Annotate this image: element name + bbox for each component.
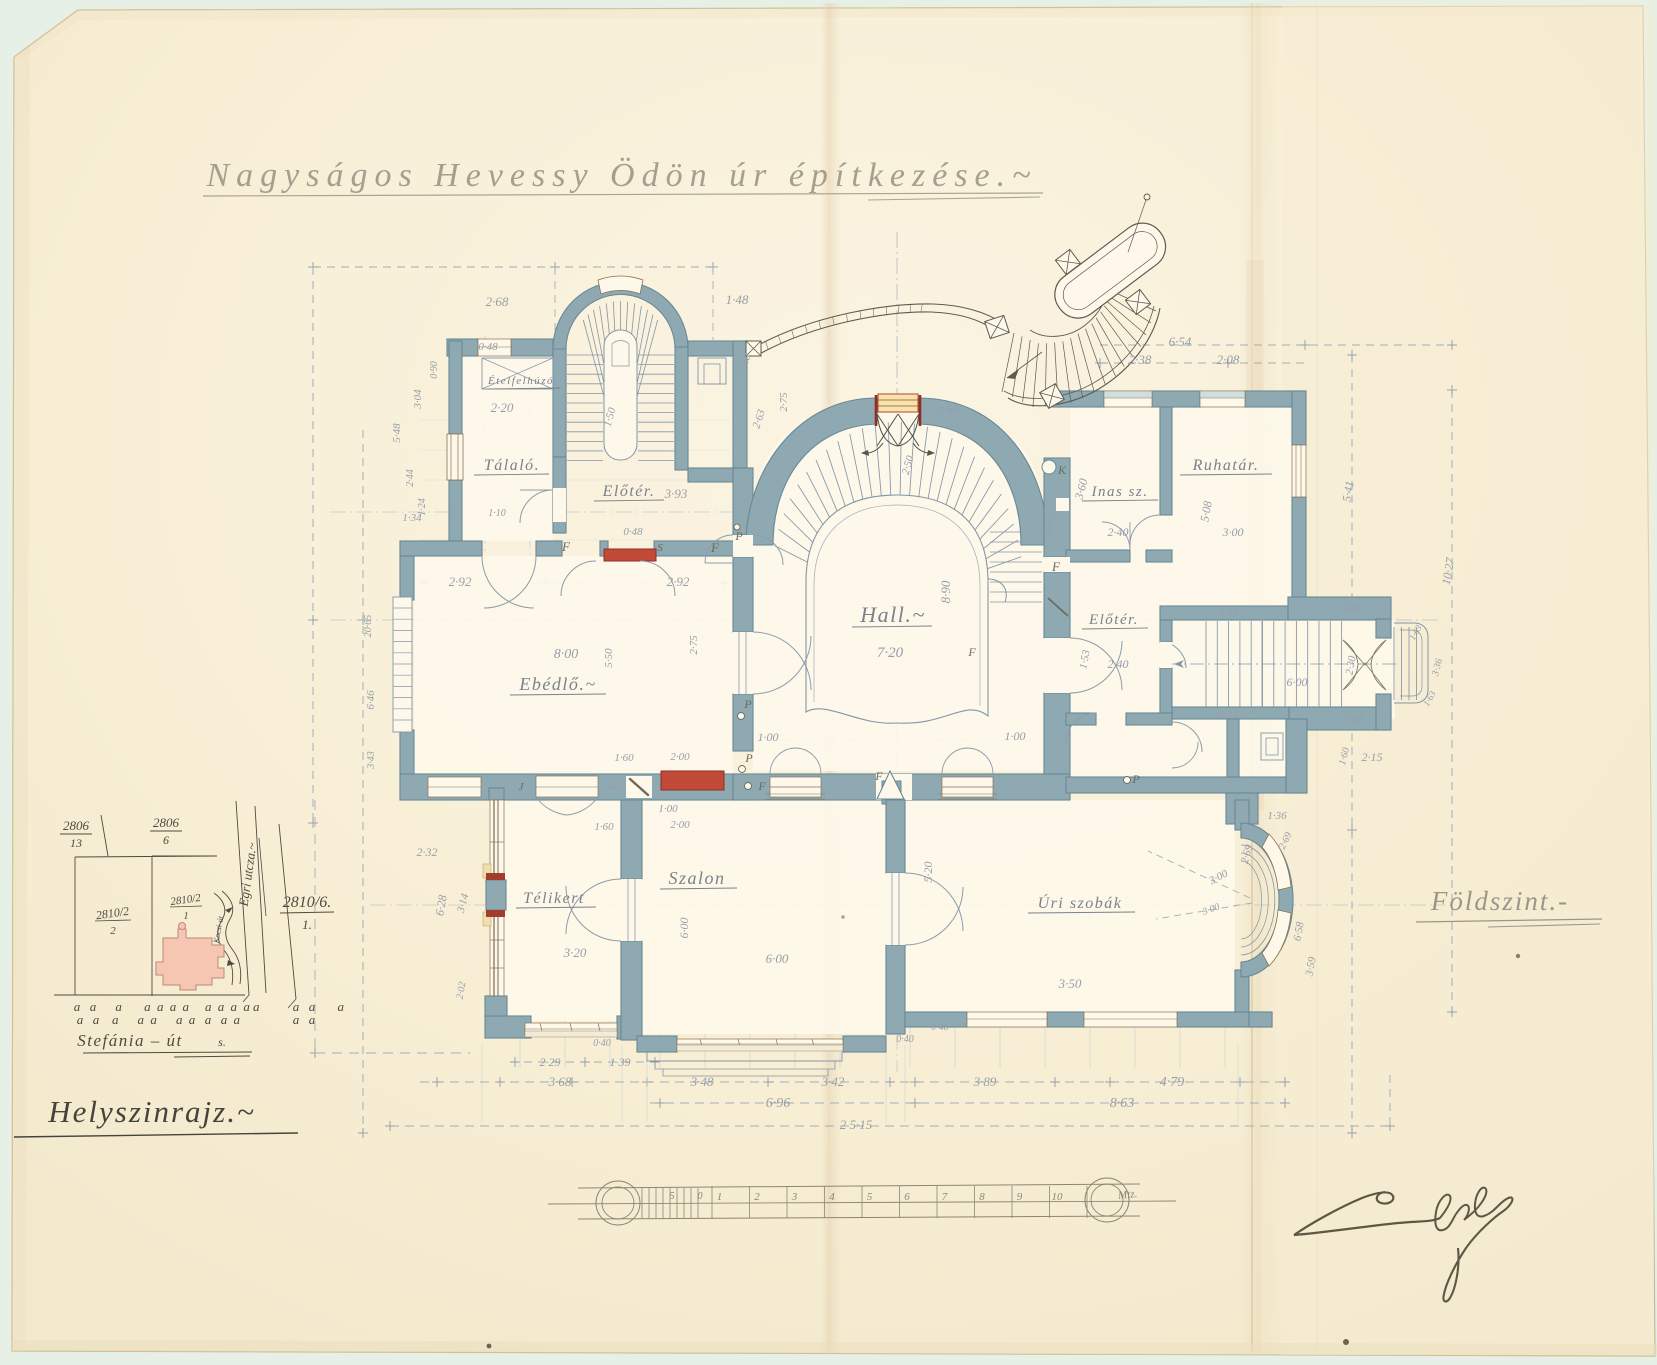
- svg-text:7·20: 7·20: [877, 645, 904, 661]
- svg-text:2: 2: [110, 925, 116, 937]
- svg-text:3: 3: [791, 1191, 798, 1203]
- svg-text:Előtér.: Előtér.: [602, 483, 656, 500]
- svg-text:1·00: 1·00: [1005, 729, 1026, 743]
- svg-text:9: 9: [1017, 1191, 1023, 1203]
- svg-text:a: a: [77, 1012, 84, 1027]
- svg-text:1·00: 1·00: [658, 803, 678, 815]
- svg-text:2810/6.: 2810/6.: [283, 894, 331, 911]
- svg-text:3·48: 3·48: [690, 1074, 714, 1089]
- svg-text:8: 8: [979, 1191, 985, 1203]
- svg-text:2806: 2806: [63, 818, 90, 833]
- svg-text:0·48: 0·48: [1342, 603, 1362, 615]
- svg-text:a: a: [112, 1012, 119, 1027]
- svg-text:5·50: 5·50: [603, 648, 615, 668]
- svg-text:3·20: 3·20: [563, 945, 587, 960]
- svg-text:0·48: 0·48: [931, 1022, 949, 1033]
- svg-text:K: K: [1057, 463, 1067, 477]
- svg-text:P: P: [744, 751, 753, 765]
- svg-text:Földszint.-: Földszint.-: [1430, 886, 1569, 916]
- svg-text:Úri szobák: Úri szobák: [1038, 893, 1123, 912]
- svg-text:2·00: 2·00: [670, 751, 690, 763]
- svg-text:7: 7: [942, 1191, 948, 1203]
- svg-text:2 5·15: 2 5·15: [840, 1117, 873, 1132]
- svg-text:Szalon: Szalon: [668, 868, 725, 888]
- svg-text:Előtér.: Előtér.: [1088, 612, 1139, 628]
- svg-text:1·24: 1·24: [417, 498, 428, 516]
- svg-text:Ruhatár.: Ruhatár.: [1192, 457, 1260, 474]
- svg-text:2·08: 2·08: [1217, 352, 1240, 367]
- svg-text:P: P: [743, 697, 752, 711]
- svg-text:F: F: [757, 779, 766, 793]
- svg-text:F: F: [967, 645, 976, 659]
- svg-text:5: 5: [670, 1191, 675, 1202]
- svg-text:a: a: [205, 1012, 212, 1027]
- svg-text:S: S: [657, 542, 663, 554]
- svg-text:3·00: 3·00: [1222, 525, 1244, 539]
- svg-text:2·44: 2·44: [405, 469, 416, 487]
- svg-text:2·75: 2·75: [688, 635, 700, 655]
- svg-text:1·36: 1·36: [1267, 810, 1287, 822]
- svg-text:2·92: 2·92: [449, 574, 472, 589]
- svg-text:3·42: 3·42: [821, 1074, 845, 1089]
- svg-text:1·39: 1·39: [610, 1055, 631, 1069]
- svg-text:1·60: 1·60: [594, 821, 614, 833]
- svg-text:a: a: [150, 1012, 157, 1027]
- svg-text:Ebédlő.~: Ebédlő.~: [518, 674, 596, 694]
- svg-text:2·29: 2·29: [540, 1055, 561, 1069]
- svg-text:3·93: 3·93: [664, 486, 688, 501]
- svg-text:a: a: [189, 1012, 196, 1027]
- svg-text:1·10: 1·10: [488, 508, 506, 519]
- svg-text:2·38: 2·38: [1129, 352, 1152, 367]
- svg-text:6·00: 6·00: [677, 918, 691, 939]
- svg-text:a: a: [176, 1012, 183, 1027]
- svg-text:2: 2: [754, 1191, 760, 1203]
- svg-text:F: F: [874, 769, 883, 783]
- svg-text:6: 6: [163, 833, 169, 847]
- svg-text:a: a: [221, 1012, 228, 1027]
- svg-text:2·68: 2·68: [486, 294, 509, 309]
- svg-text:1.: 1.: [302, 917, 312, 932]
- svg-text:3·04: 3·04: [412, 389, 424, 410]
- svg-text:a: a: [93, 1012, 100, 1027]
- svg-text:s.: s.: [218, 1035, 226, 1049]
- svg-text:2·40: 2·40: [1108, 657, 1129, 671]
- svg-text:0·33: 0·33: [1218, 607, 1238, 619]
- svg-text:1: 1: [184, 911, 189, 922]
- svg-text:Inas sz.: Inas sz.: [1090, 484, 1148, 500]
- svg-text:6·46: 6·46: [365, 690, 377, 710]
- svg-text:1: 1: [717, 1191, 723, 1203]
- svg-text:F: F: [1051, 559, 1061, 574]
- svg-text:20·65: 20·65: [363, 615, 374, 638]
- svg-text:6·54: 6·54: [1169, 334, 1192, 349]
- svg-text:Mtz.: Mtz.: [1116, 1188, 1137, 1202]
- svg-text:3·50: 3·50: [1058, 976, 1082, 991]
- svg-text:3·43: 3·43: [366, 751, 377, 770]
- svg-text:Tálaló.: Tálaló.: [484, 457, 540, 474]
- svg-text:a: a: [253, 999, 260, 1014]
- svg-text:5·48: 5·48: [391, 423, 403, 443]
- svg-text:a: a: [338, 999, 345, 1014]
- svg-text:2·75: 2·75: [778, 392, 790, 412]
- svg-text:0·90: 0·90: [429, 361, 440, 379]
- svg-text:F: F: [561, 539, 571, 554]
- svg-text:48: 48: [607, 782, 617, 793]
- svg-text:8·00: 8·00: [554, 647, 579, 662]
- svg-text:8·63: 8·63: [1110, 1096, 1135, 1111]
- svg-text:4·79: 4·79: [1160, 1075, 1185, 1090]
- svg-text:4: 4: [829, 1191, 835, 1203]
- svg-text:6: 6: [904, 1191, 910, 1203]
- svg-text:10: 10: [1052, 1191, 1064, 1203]
- svg-text:Télikert: Télikert: [523, 890, 585, 907]
- svg-text:0·48: 0·48: [623, 526, 643, 538]
- svg-text:6·00: 6·00: [1287, 675, 1308, 689]
- svg-text:2·15: 2·15: [1362, 750, 1383, 764]
- svg-text:2·00: 2·00: [670, 819, 690, 831]
- svg-text:3·68: 3·68: [548, 1074, 572, 1089]
- svg-text:a: a: [243, 999, 250, 1014]
- svg-text:1·00: 1·00: [758, 730, 779, 744]
- svg-text:2·32: 2·32: [417, 845, 438, 859]
- svg-text:6·96: 6·96: [766, 1096, 791, 1111]
- svg-text:1·48: 1·48: [726, 292, 749, 307]
- svg-text:Helyszinrajz.~: Helyszinrajz.~: [47, 1094, 256, 1129]
- svg-text:Hall.~: Hall.~: [859, 602, 926, 627]
- svg-text:P: P: [1131, 772, 1140, 786]
- svg-text:3·89: 3·89: [973, 1074, 997, 1089]
- svg-text:Stefánia – út: Stefánia – út: [77, 1031, 182, 1050]
- svg-text:5·20: 5·20: [921, 862, 935, 883]
- svg-text:a: a: [293, 1012, 300, 1027]
- svg-text:2·40: 2·40: [1108, 525, 1129, 539]
- svg-text:0·33: 0·33: [1218, 709, 1238, 721]
- svg-text:Nagyságos Hevessy Ödön úr épít: Nagyságos Hevessy Ödön úr építkezése.~: [205, 157, 1037, 194]
- svg-text:0·48: 0·48: [478, 341, 498, 353]
- svg-text:6·00: 6·00: [766, 951, 789, 966]
- svg-text:F: F: [710, 540, 720, 555]
- svg-text:a: a: [157, 999, 164, 1014]
- svg-text:0: 0: [698, 1191, 703, 1202]
- svg-text:0·40: 0·40: [593, 1038, 611, 1049]
- svg-text:2·92: 2·92: [667, 574, 690, 589]
- svg-text:2806: 2806: [153, 815, 180, 830]
- svg-text:8·90: 8·90: [938, 580, 953, 603]
- svg-text:13: 13: [70, 836, 82, 850]
- svg-text:a: a: [138, 1012, 145, 1027]
- svg-text:1·60: 1·60: [614, 752, 634, 764]
- svg-text:Ételfelhúzó: Ételfelhúzó: [487, 375, 554, 387]
- svg-text:5: 5: [867, 1191, 873, 1203]
- svg-text:a: a: [234, 1012, 241, 1027]
- svg-text:2·20: 2·20: [491, 400, 514, 415]
- svg-text:P: P: [734, 529, 743, 543]
- svg-text:0·40: 0·40: [896, 1034, 914, 1045]
- svg-text:0·48: 0·48: [1342, 713, 1362, 725]
